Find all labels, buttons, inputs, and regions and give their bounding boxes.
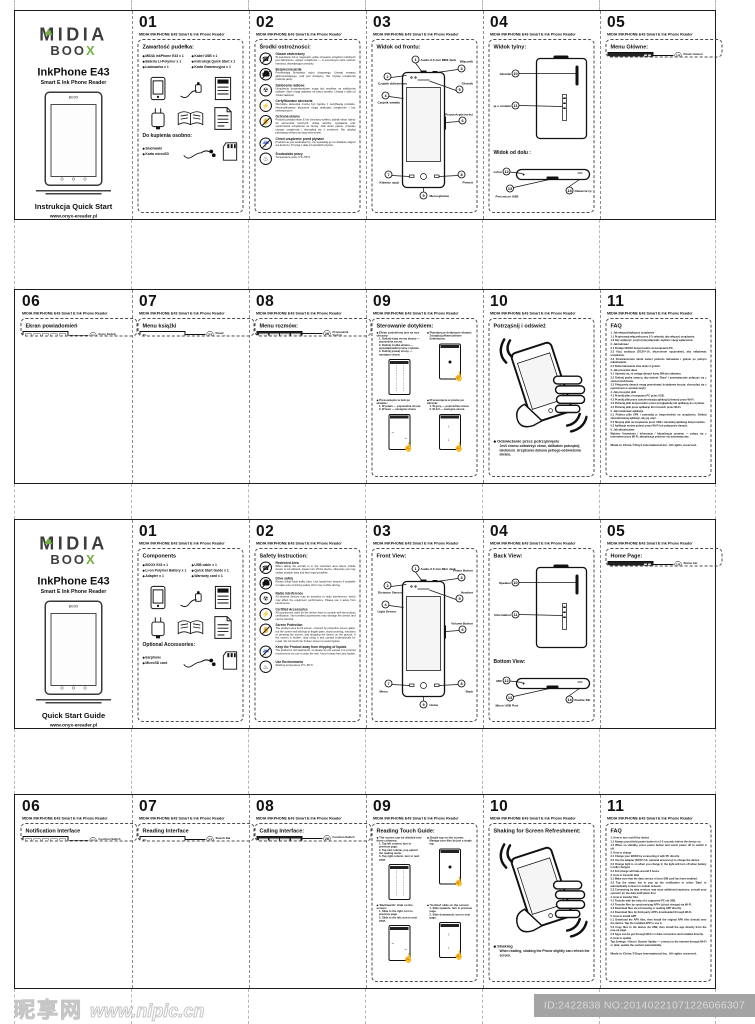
cut-marks bbox=[14, 0, 716, 10]
no-pressure-icon: ✋ bbox=[260, 624, 273, 637]
notification-screen-thumbnail bbox=[23, 331, 69, 337]
faq-line: 3. Jak przesyłać dane bbox=[611, 369, 707, 372]
hand-icon bbox=[402, 441, 414, 453]
thumb-dialer-tabs bbox=[258, 332, 302, 337]
phone-swipe-v-figure bbox=[439, 922, 461, 958]
section-title: Potrząśnij i odśwież bbox=[494, 323, 590, 329]
cover-phone-illustration: BOOX bbox=[45, 92, 103, 187]
faq-line: 3. How to transmit data bbox=[611, 874, 707, 877]
quick-start-book-icon bbox=[177, 108, 204, 130]
svg-text:1: 1 bbox=[414, 58, 416, 62]
box-item: USB cable x 1 bbox=[192, 564, 239, 568]
svg-text:8: 8 bbox=[460, 682, 462, 686]
device-subtitle: Smart E Ink Phone Reader bbox=[41, 589, 107, 595]
usb-cable-icon bbox=[178, 585, 203, 610]
panel-08-pl: 08 MIDIA INKPHONE E43 Smart E Ink Phone … bbox=[249, 290, 366, 483]
svg-text:Menu: Menu bbox=[380, 690, 388, 694]
callout-20: 20 bbox=[90, 837, 97, 842]
cover-footer-title: Quick Start Guide bbox=[42, 712, 105, 721]
panel-header: MIDIA INKPHONE E43 Smart E Ink Phone Rea… bbox=[139, 32, 225, 37]
reading-screen-thumbnail: B bbox=[140, 836, 186, 842]
section-title: Ekran powiadomień bbox=[26, 323, 133, 329]
no-pressure-icon: ✋ bbox=[260, 115, 273, 128]
panel-10-en: 10 MIDIA INKPHONE E43 Smart E Ink Phone … bbox=[483, 795, 600, 988]
section-title: Shaking for Screen Refreshment: bbox=[494, 828, 590, 834]
touch-guide-vertical: Przesunięcie w pionie po ekranie:1. W gó… bbox=[427, 399, 473, 450]
svg-text:Volume Button: Volume Button bbox=[451, 622, 473, 626]
panel-number: 04 bbox=[490, 522, 508, 540]
bottom-view-title: Bottom View: bbox=[494, 659, 590, 665]
touch-guide-horizontal: 'Backwards' slide on the screen:1. Slide… bbox=[377, 904, 423, 961]
svg-text:Back: Back bbox=[466, 690, 474, 694]
cover-phone-illustration: BOOX bbox=[45, 601, 103, 696]
svg-text:2: 2 bbox=[386, 584, 388, 588]
phone-brand-label: BOOX bbox=[46, 605, 101, 609]
section-title: Menu rozmów: bbox=[260, 323, 367, 329]
svg-text:13: 13 bbox=[508, 187, 512, 191]
phone-buttons bbox=[46, 178, 101, 181]
phone-brand-label: BOOX bbox=[46, 96, 101, 100]
faq-title: FAQ bbox=[611, 828, 707, 834]
panel-header: MIDIA INKPHONE E43 Smart E Ink Phone Rea… bbox=[373, 541, 459, 546]
hand-icon bbox=[453, 950, 465, 962]
front-view-diagram: 1Audio-3.5 mm Mini Jack 2Distance Sensor… bbox=[377, 562, 475, 712]
panel-header: MIDIA INKPHONE E43 Smart E Ink Phone Rea… bbox=[607, 32, 693, 37]
guide-line: 3. Tap right column, turn to next page. bbox=[379, 855, 422, 861]
panel-03-en: 03 MIDIA INKPHONE E43 Smart E Ink Phone … bbox=[366, 520, 483, 728]
svg-text:Model Information: Model Information bbox=[494, 613, 512, 617]
section-title: Calling Interface: bbox=[260, 828, 367, 834]
panel-number: 11 bbox=[607, 797, 624, 815]
svg-text:Klawisz opcji: Klawisz opcji bbox=[380, 181, 400, 185]
panel-06-pl: 06 MIDIA INKPHONE E43 Smart E Ink Phone … bbox=[15, 290, 132, 483]
panel-number: 05 bbox=[607, 522, 625, 540]
svg-text:3: 3 bbox=[460, 67, 462, 71]
guide-line: Zarządzaj plikami jednym dotknięciem. bbox=[430, 335, 473, 341]
faq-line: 3.1 Upewnij się, że usługa danych karty … bbox=[611, 373, 707, 376]
radio-interference-icon: ☢ bbox=[260, 592, 273, 605]
svg-text:9: 9 bbox=[422, 703, 424, 707]
safety-text: W samolocie lub w miejscach, gdzie używa… bbox=[276, 56, 356, 66]
panel-11-pl: 11 MIDIA INKPHONE E43 Smart E Ink Phone … bbox=[600, 290, 717, 483]
faq-line: 6. Jak aktualizować bbox=[611, 429, 707, 432]
guide-line: 2. W dół — następna strona. bbox=[430, 408, 473, 411]
radio-interference-icon: ☢ bbox=[260, 84, 273, 97]
safety-text: Urządzenia bezprzewodowe mogą być wrażli… bbox=[276, 87, 356, 97]
phone-tap-figure bbox=[439, 343, 461, 379]
callout-15: 15 bbox=[675, 52, 682, 58]
panel-number: 01 bbox=[139, 13, 157, 31]
svg-text:13: 13 bbox=[508, 696, 512, 700]
shake-bullet-title: Odświeżanie przez potrząśnięcie bbox=[494, 439, 590, 444]
hand-icon bbox=[453, 876, 465, 888]
faq-line: 5. Jak instalować aplikacje bbox=[611, 410, 707, 413]
panel-07-pl: 07 MIDIA INKPHONE E43 Smart E Ink Phone … bbox=[132, 290, 249, 483]
faq-line: 2.4 Full charge will take around 3 hours… bbox=[611, 870, 707, 873]
no-driving-icon bbox=[260, 68, 273, 81]
faq-line: 2. How to charge bbox=[611, 851, 707, 854]
callout-26: 26 bbox=[324, 835, 331, 842]
brand-boo: BOO bbox=[50, 43, 86, 58]
panel-05-pl: 05 MIDIA INKPHONE E43 Smart E Ink Phone … bbox=[600, 11, 717, 219]
panel-01-pl: 01 MIDIA INKPHONE E43 Smart E Ink Phone … bbox=[132, 11, 249, 219]
faq-line: 1.2 When on standby, press power button … bbox=[611, 844, 707, 851]
panel-number: 10 bbox=[490, 292, 508, 310]
website-url: www.onyx-ereader.pl bbox=[50, 214, 97, 220]
svg-text:Micro USB Port: Micro USB Port bbox=[496, 704, 519, 708]
svg-text:Audio-3,5 mm MINI Jack: Audio-3,5 mm MINI Jack bbox=[421, 58, 457, 62]
callout-15: 15 bbox=[675, 561, 682, 567]
svg-text:7: 7 bbox=[387, 173, 389, 177]
section-title: Widok od frontu: bbox=[377, 44, 473, 50]
box-item: BOOX E43 x 1 bbox=[143, 564, 190, 568]
panel-10-pl: 10 MIDIA INKPHONE E43 Smart E Ink Phone … bbox=[483, 290, 600, 483]
svg-text:Distance Sensor: Distance Sensor bbox=[378, 591, 403, 595]
components-icons bbox=[143, 76, 239, 131]
back-view-title: Back View: bbox=[494, 553, 590, 559]
website-url: www.onyx-ereader.pl bbox=[50, 723, 97, 729]
svg-text:6: 6 bbox=[461, 628, 463, 632]
no-liquids-icon: ☔ bbox=[260, 646, 273, 659]
box-item: Instrukcja Quick Start x 1 bbox=[192, 60, 239, 64]
panel-09-en: 09 MIDIA INKPHONE E43 Smart E Ink Phone … bbox=[366, 795, 483, 988]
svg-text:5: 5 bbox=[458, 597, 460, 601]
panel-header: MIDIA INKPHONE E43 Smart E Ink Phone Rea… bbox=[139, 311, 225, 316]
panel-number: 11 bbox=[607, 292, 624, 310]
section-title: Zawartość pudełka: bbox=[143, 44, 239, 50]
phone-screen bbox=[51, 613, 97, 686]
cover-footer-title: Instrukcja Quick Start bbox=[35, 203, 113, 212]
environment-icon: ♨ bbox=[260, 661, 273, 674]
faq-line: 5.1 Pobierz pliki APK i zainstaluj je be… bbox=[611, 414, 707, 421]
section-title: Reading Touch Guide: bbox=[377, 828, 473, 834]
panel-04-en: 04 MIDIA INKPHONE E43 Smart E Ink Phone … bbox=[483, 520, 600, 728]
cover-panel-en: MIDIA BOOX InkPhone E43 Smart E Ink Phon… bbox=[15, 520, 132, 728]
faq-line: 4.1 Transfer with the help of a supporte… bbox=[611, 900, 707, 903]
touch-guide-vertical: 'Vertical' slide on the screen:1. Slide … bbox=[427, 904, 473, 961]
faq-line: 3.2 Dotknij paska statusu, aby wybrać 'D… bbox=[611, 376, 707, 383]
callout-label: Pasek statusu bbox=[684, 53, 706, 56]
device-subtitle: Smart E Ink Phone Reader bbox=[41, 80, 107, 86]
panel-header: MIDIA INKPHONE E43 Smart E Ink Phone Rea… bbox=[256, 541, 342, 546]
faq-line: 5.3 Apps can be got through Wi-Fi or dat… bbox=[611, 933, 707, 936]
thumb-function-icons bbox=[24, 332, 68, 337]
safety-text: Produkt posiada ekran E Ink chroniony sz… bbox=[276, 119, 356, 135]
back-view-title: Widok tylny: bbox=[494, 44, 590, 50]
home-screen-thumbnail bbox=[608, 52, 654, 58]
faq-line: 2.2 Use the adapter (DC5V=1A, optional a… bbox=[611, 859, 707, 862]
svg-text:MIC: MIC bbox=[496, 679, 502, 683]
row-en-front: MIDIA BOOX InkPhone E43 Smart E Ink Phon… bbox=[14, 519, 716, 729]
phone-swipe-h-figure bbox=[388, 414, 410, 450]
svg-text:1: 1 bbox=[414, 567, 416, 571]
box-item: Bateria Li-Polymer x 1 bbox=[143, 60, 190, 64]
svg-text:3: 3 bbox=[460, 576, 462, 580]
callout-20: 20 bbox=[90, 332, 97, 337]
microsd-card-icon bbox=[222, 651, 239, 671]
faq-line: 2.3 Orange light is on when you charge i… bbox=[611, 863, 707, 870]
section-title: Menu książki bbox=[143, 323, 250, 329]
device-title: InkPhone E43 bbox=[37, 575, 109, 588]
panel-header: MIDIA INKPHONE E43 Smart E Ink Phone Rea… bbox=[139, 816, 225, 821]
safety-text: Produkt nie jest wodoodporny; nie wystaw… bbox=[276, 141, 356, 147]
box-item: Karta Gwarancyjna x 1 bbox=[192, 66, 239, 70]
panel-number: 07 bbox=[139, 797, 157, 815]
faq-line: 1.1 Always press/hold power button for 2… bbox=[611, 840, 707, 843]
power-adapter-icon bbox=[146, 615, 169, 640]
callout-23: 23 bbox=[207, 331, 214, 337]
svg-text:Głośnik: Głośnik bbox=[462, 82, 474, 86]
touch-guide-horizontal: Przesunięcie w bok po ekranie:1. W prawo… bbox=[377, 399, 423, 450]
panel-header: MIDIA INKPHONE E43 Smart E Ink Phone Rea… bbox=[373, 32, 459, 37]
faq-line: 4.2 Prześlij pliki przez synchronizację … bbox=[611, 398, 707, 401]
power-adapter-icon bbox=[146, 106, 169, 131]
phone-tap-figure bbox=[439, 848, 461, 884]
optional-item: Słuchawki bbox=[143, 147, 179, 151]
guide-line: 3. Dotknij prawej strony — następna stro… bbox=[379, 350, 422, 356]
faq-line: 4.2 Transfer files by synchronizing APPs… bbox=[611, 903, 707, 906]
faq-line: 5.1 Download the APK files, then install… bbox=[611, 919, 707, 926]
svg-text:5: 5 bbox=[458, 88, 460, 92]
panel-09-pl: 09 MIDIA INKPHONE E43 Smart E Ink Phone … bbox=[366, 290, 483, 483]
back-view-diagram: 10Głośnik 11Informacje o modelu bbox=[494, 53, 592, 146]
phone-icon bbox=[149, 585, 166, 610]
panel-number: 06 bbox=[22, 797, 40, 815]
shaking-phone-illustration bbox=[496, 332, 588, 434]
phone-swipe-v-figure bbox=[439, 414, 461, 450]
svg-text:Menu główne: Menu główne bbox=[430, 194, 450, 198]
panel-header: MIDIA INKPHONE E43 Smart E Ink Phone Rea… bbox=[607, 541, 693, 546]
no-phone-icon: ☎ bbox=[260, 53, 273, 66]
faq-line: 2.1 Charge your BOOX by connecting it wi… bbox=[611, 855, 707, 858]
panel-number: 02 bbox=[256, 522, 274, 540]
certified-accessories-icon: ⚡ bbox=[260, 608, 273, 621]
row-en-back: 06 MIDIA INKPHONE E43 Smart E Ink Phone … bbox=[14, 794, 716, 989]
green-wedge-icon bbox=[44, 29, 52, 36]
phone-icon bbox=[149, 76, 166, 101]
panel-header: MIDIA INKPHONE E43 Smart E Ink Phone Rea… bbox=[139, 541, 225, 546]
made-in-line: Made in China ©Onyx International Inc. A… bbox=[611, 444, 707, 448]
faq-line: Tap Settings / About / System Update — c… bbox=[611, 941, 707, 948]
callout-23: 23 bbox=[207, 836, 214, 842]
cut-marks bbox=[14, 729, 716, 794]
panel-04-pl: 04 MIDIA INKPHONE E43 Smart E Ink Phone … bbox=[483, 11, 600, 219]
box-item: Ładowarka x 1 bbox=[143, 66, 190, 70]
safety-text: Temperatura pracy 0°C–50°C. bbox=[276, 156, 356, 159]
svg-text:9: 9 bbox=[422, 194, 424, 198]
brand-logo: MIDIA BOOX bbox=[39, 24, 108, 59]
svg-text:Głośnik: Głośnik bbox=[500, 72, 512, 76]
panel-02-pl: 02 MIDIA INKPHONE E43 Smart E Ink Phone … bbox=[249, 11, 366, 219]
faq-line: 1. How to turn on/off the device bbox=[611, 837, 707, 840]
notification-screen-thumbnail bbox=[23, 836, 69, 842]
cover-panel-pl: MIDIA BOOX InkPhone E43 Smart E Ink Phon… bbox=[15, 11, 132, 219]
panel-number: 09 bbox=[373, 292, 391, 310]
panel-03-pl: 03 MIDIA INKPHONE E43 Smart E Ink Phone … bbox=[366, 11, 483, 219]
phone-columns-figure bbox=[388, 864, 410, 900]
panel-header: MIDIA INKPHONE E43 Smart E Ink Phone Rea… bbox=[373, 816, 459, 821]
no-driving-icon bbox=[260, 577, 273, 590]
components-icons bbox=[143, 585, 239, 640]
guide-line: 2. W lewo — następna strona. bbox=[379, 408, 422, 411]
bottom-view-diagram: 12MIC 13Micro USB Port 14Buckle Slit bbox=[494, 666, 592, 712]
watermark-site-url: www.nipic.cn bbox=[90, 1001, 204, 1022]
panel-number: 03 bbox=[373, 13, 391, 31]
panel-number: 08 bbox=[256, 797, 274, 815]
document-icon bbox=[214, 615, 233, 640]
shaking-phone-illustration bbox=[496, 837, 588, 939]
svg-text:12: 12 bbox=[504, 679, 508, 683]
section-title: Menu Główne: bbox=[611, 44, 718, 50]
front-view-diagram: 1Audio-3,5 mm MINI Jack 2Czujnik zbliżen… bbox=[377, 53, 475, 203]
reading-screen-thumbnail: B bbox=[140, 331, 186, 337]
environment-icon: ♨ bbox=[260, 152, 273, 165]
back-view-diagram: 10Speaker 11Model Information bbox=[494, 562, 592, 655]
faq-line: 4.4 Download files by third-party APPs d… bbox=[611, 911, 707, 914]
touch-guide-tap: Single tap on the screen:Manage your fil… bbox=[427, 837, 473, 901]
faq-line: 6. How to update bbox=[611, 937, 707, 940]
svg-text:Otwarcie tylnej klapy: Otwarcie tylnej klapy bbox=[575, 189, 592, 193]
faq-line: 2.4 Pełne ładowanie trwa około 3 godzin. bbox=[611, 365, 707, 368]
hand-icon bbox=[402, 953, 414, 965]
section-title: Home Page: bbox=[611, 553, 718, 559]
faq-line: 4. How to transfer files bbox=[611, 896, 707, 899]
faq-line: 4.4 Pobieraj pliki przez aplikacje firm … bbox=[611, 406, 707, 409]
svg-text:10: 10 bbox=[513, 72, 517, 76]
no-phone-icon: ☎ bbox=[260, 562, 273, 575]
divider bbox=[46, 193, 102, 194]
warranty-card-icon bbox=[214, 585, 232, 610]
panel-header: MIDIA INKPHONE E43 Smart E Ink Phone Rea… bbox=[490, 32, 576, 37]
certified-accessories-icon: ⚡ bbox=[260, 100, 273, 113]
panel-number: 02 bbox=[256, 13, 274, 31]
svg-text:7: 7 bbox=[387, 682, 389, 686]
bottom-view-diagram: 12Mikrofon 13Port micro USB 14Otwarcie t… bbox=[494, 157, 592, 203]
box-item: Kabel USB x 1 bbox=[192, 55, 239, 59]
panel-number: 04 bbox=[490, 13, 508, 31]
usb-cable-icon bbox=[178, 76, 203, 101]
panel-07-en: 07 MIDIA INKPHONE E43 Smart E Ink Phone … bbox=[132, 795, 249, 988]
faq-line: 5.3 Aplikacje można pobrać przez Wi-Fi l… bbox=[611, 425, 707, 428]
svg-text:Light Sensor: Light Sensor bbox=[378, 610, 398, 614]
brand-logo: MIDIA BOOX bbox=[39, 533, 108, 568]
panel-08-en: 08 MIDIA INKPHONE E43 Smart E Ink Phone … bbox=[249, 795, 366, 988]
faq-line: 2.2 Użyj zasilacza (DC5V=1A, akcesorium … bbox=[611, 351, 707, 358]
watermark-logo: 昵享网 www.nipic.cn bbox=[14, 993, 204, 1024]
svg-text:Speaker: Speaker bbox=[499, 581, 512, 585]
dialer-screen-thumbnail: 123456789*0# ▼✆✕ bbox=[257, 836, 303, 842]
device-title: InkPhone E43 bbox=[37, 66, 109, 79]
panel-header: MIDIA INKPHONE E43 Smart E Ink Phone Rea… bbox=[373, 311, 459, 316]
faq-line: 3.2 Tap the status bar to pop up the not… bbox=[611, 881, 707, 888]
section-title: Reading Interface bbox=[143, 828, 250, 834]
home-screen-thumbnail bbox=[608, 561, 654, 567]
drop-cap: B bbox=[143, 334, 147, 337]
svg-text:Przycisk głośności: Przycisk głośności bbox=[445, 113, 473, 117]
panel-number: 10 bbox=[490, 797, 508, 815]
faq-line: 3.3 Połączenia danych mogą powodować dod… bbox=[611, 384, 707, 391]
safety-text: Wszystkie akcesoria muszą być zgodne z c… bbox=[276, 103, 356, 113]
shake-bullet-title: Shaking bbox=[494, 944, 590, 949]
faq-line: 2.3 Pomarańczowa dioda świeci podczas ła… bbox=[611, 358, 707, 365]
panel-number: 09 bbox=[373, 797, 391, 815]
hand-icon bbox=[453, 441, 465, 453]
panel-11-en: 11 MIDIA INKPHONE E43 Smart E Ink Phone … bbox=[600, 795, 717, 988]
phone-columns-figure bbox=[388, 359, 410, 395]
panel-number: 07 bbox=[139, 292, 157, 310]
cut-mar bbox=[14, 220, 716, 289]
optional-item: Karta microSD bbox=[143, 153, 179, 157]
quick-start-book-icon bbox=[177, 617, 204, 639]
guide-line: 2. Slide downwards, turn to next page. bbox=[430, 913, 473, 919]
svg-text:6: 6 bbox=[461, 119, 463, 123]
svg-text:Włącznik: Włącznik bbox=[460, 60, 474, 64]
faq-line: 4.3 Pobieraj pliki bezpośrednio przez pr… bbox=[611, 402, 707, 405]
faq-line: Wybierz Ustawienia / Informacje / Aktual… bbox=[611, 432, 707, 439]
drop-cap: B bbox=[143, 839, 147, 842]
optional-item: Earphone bbox=[143, 656, 179, 660]
phone-swipe-h-figure bbox=[388, 925, 410, 961]
optional-title: Optional Accessories: bbox=[143, 642, 239, 648]
svg-text:Czujnik światła: Czujnik światła bbox=[378, 101, 400, 105]
panel-number: 01 bbox=[139, 522, 157, 540]
svg-text:Headset: Headset bbox=[461, 591, 473, 595]
panel-header: MIDIA INKPHONE E43 Smart E Ink Phone Rea… bbox=[490, 311, 576, 316]
panel-header: MIDIA INKPHONE E43 Smart E Ink Phone Rea… bbox=[490, 816, 576, 821]
section-title: Środki ostrożności: bbox=[260, 44, 356, 50]
faq-line: 2. Jak ładować bbox=[611, 343, 707, 346]
faq-line: 4.1 Prześlij pliki z komputera PC przez … bbox=[611, 395, 707, 398]
svg-text:Port micro USB: Port micro USB bbox=[496, 195, 520, 199]
manual-sheet: MIDIA BOOX InkPhone E43 Smart E Ink Phon… bbox=[0, 0, 755, 1024]
guide-line: Manage your files by just a single tap. bbox=[430, 840, 473, 846]
box-item: Li-on Polymer Battery x 1 bbox=[143, 569, 190, 573]
svg-text:Mikrofon: Mikrofon bbox=[494, 170, 503, 174]
row-pl-front: MIDIA BOOX InkPhone E43 Smart E Ink Phon… bbox=[14, 10, 716, 220]
faq-line: 3.1 Make sure that the data service of y… bbox=[611, 878, 707, 881]
touch-guide-columns: Ekran podzielony jest na trzy obszary:1.… bbox=[377, 332, 423, 396]
svg-text:Czujnik zbliżeniowy: Czujnik zbliżeniowy bbox=[378, 82, 407, 86]
faq-line: 3.3 Connecting by data services may incu… bbox=[611, 889, 707, 896]
faq-line: 4. Jak przesyłać pliki bbox=[611, 391, 707, 394]
panel-01-en: 01 MIDIA INKPHONE E43 Smart E Ink Phone … bbox=[132, 520, 249, 728]
divider bbox=[36, 190, 111, 191]
no-liquids-icon: ☔ bbox=[260, 137, 273, 150]
faq-line: 1. Jak włączyć/wyłączyć urządzenie bbox=[611, 332, 707, 335]
svg-text:Power Button: Power Button bbox=[453, 569, 473, 573]
green-wedge-icon bbox=[44, 538, 52, 545]
callout-26: 26 bbox=[324, 330, 331, 337]
panel-05-en: 05 MIDIA INKPHONE E43 Smart E Ink Phone … bbox=[600, 520, 717, 728]
warranty-card-icon bbox=[214, 76, 232, 101]
faq-line: 1.2 Aby wyłączyć, przytrzymaj włącznik i… bbox=[611, 339, 707, 342]
row-pl-back: 06 MIDIA INKPHONE E43 Smart E Ink Phone … bbox=[14, 289, 716, 484]
microsd-card-icon bbox=[222, 142, 239, 162]
faq-title: FAQ bbox=[611, 323, 707, 329]
panel-06-en: 06 MIDIA INKPHONE E43 Smart E Ink Phone … bbox=[15, 795, 132, 988]
panel-header: MIDIA INKPHONE E43 Smart E Ink Phone Rea… bbox=[607, 311, 693, 316]
faq-line: 4.3 Download files via a browsing or rea… bbox=[611, 907, 707, 910]
faq-line: 1.1 Przytrzymaj włącznik przez 2-3 sekun… bbox=[611, 335, 707, 338]
box-item: MIDIA InkPhone E43 x 1 bbox=[143, 55, 190, 59]
box-item: Adapter x 1 bbox=[143, 575, 190, 579]
section-title: Sterowanie dotykiem: bbox=[377, 323, 473, 329]
touch-guide-columns: The screen can be divided into three col… bbox=[377, 837, 423, 901]
panel-header: MIDIA INKPHONE E43 Smart E Ink Phone Rea… bbox=[22, 816, 108, 821]
panel-number: 03 bbox=[373, 522, 391, 540]
section-title: Front View: bbox=[377, 553, 473, 559]
phone-buttons bbox=[46, 687, 101, 690]
